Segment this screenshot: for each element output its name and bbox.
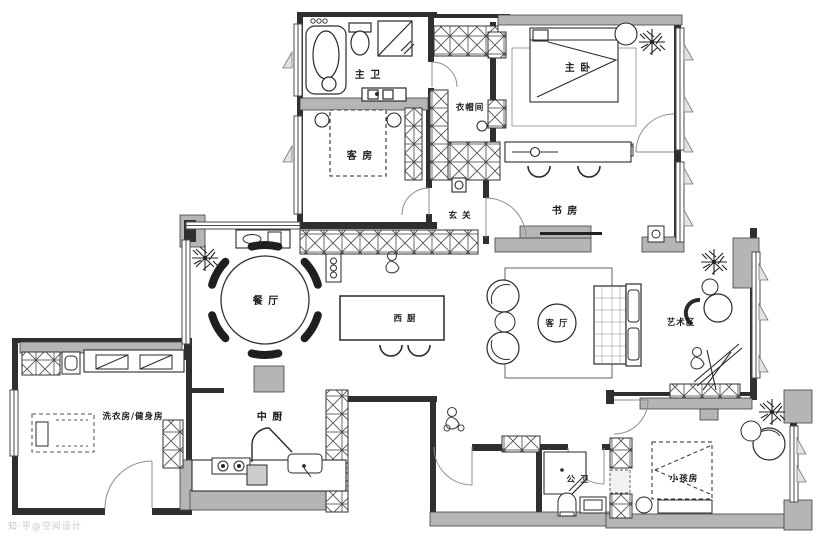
treadmill bbox=[32, 414, 94, 452]
door-master-bath bbox=[432, 62, 457, 87]
person-figure bbox=[691, 348, 704, 369]
room-kids bbox=[636, 421, 785, 513]
stool bbox=[636, 497, 652, 513]
window bbox=[676, 162, 684, 242]
cloakroom-left-cabinet bbox=[430, 90, 448, 180]
room-west-kitchen bbox=[340, 296, 444, 356]
bathtub-basin bbox=[313, 31, 339, 79]
label-study: 书 房 bbox=[552, 204, 578, 217]
room-master-bathroom bbox=[306, 19, 414, 101]
desk-chair bbox=[528, 166, 550, 177]
label-living: 客 厅 bbox=[545, 318, 569, 329]
dots bbox=[311, 19, 327, 23]
floor-plan-drawing: 主 卫 主 卧 衣帽间 客 房 玄 关 书 房 餐 厅 西 厨 客 厅 艺术区 … bbox=[0, 0, 821, 547]
side-table bbox=[495, 312, 515, 332]
bedside-table bbox=[387, 113, 401, 127]
window bbox=[186, 222, 300, 229]
room-chinese-kitchen bbox=[192, 428, 346, 491]
west-kitchen-cabinets bbox=[300, 230, 478, 254]
window bbox=[294, 24, 302, 96]
kitchen-tall-cabinet bbox=[326, 390, 348, 512]
tv bbox=[540, 232, 602, 235]
pantry-door bbox=[247, 465, 267, 485]
label-chinese-kitchen: 中 厨 bbox=[257, 410, 283, 423]
desk-chair bbox=[578, 166, 600, 177]
person-figure bbox=[386, 252, 399, 273]
label-guest-bathroom: 公 卫 bbox=[567, 475, 590, 485]
door-guest-room bbox=[402, 188, 429, 215]
laundry-cabinet bbox=[22, 352, 60, 375]
cloakroom-stool bbox=[477, 121, 487, 131]
bar-stool bbox=[408, 345, 430, 356]
guest-room-wardrobe bbox=[405, 108, 422, 180]
window bbox=[676, 28, 684, 150]
kitchen-island bbox=[340, 296, 444, 340]
label-laundry-gym: 洗衣房/健身房 bbox=[102, 411, 163, 422]
toilet-bowl bbox=[351, 31, 369, 55]
room-master-bedroom bbox=[505, 23, 637, 177]
bedside-table bbox=[315, 113, 329, 127]
label-master-bathroom: 主 卫 bbox=[355, 68, 381, 81]
plant-icon bbox=[759, 399, 785, 425]
bar-stool bbox=[380, 345, 402, 356]
door-hall bbox=[434, 447, 472, 485]
sink bbox=[288, 454, 322, 473]
window bbox=[10, 390, 18, 456]
plant-icon bbox=[701, 249, 727, 275]
fixture bbox=[648, 226, 664, 242]
door-master-bedroom bbox=[636, 114, 674, 152]
desk-knob bbox=[531, 148, 540, 157]
niche-dashed bbox=[610, 470, 630, 493]
watermark-text: 知·乎@空间设计 bbox=[8, 520, 82, 532]
scooter-wheel bbox=[458, 425, 464, 431]
label-dining: 餐 厅 bbox=[252, 294, 279, 307]
shower-enclosure bbox=[544, 452, 586, 494]
label-master-bedroom: 主 卧 bbox=[565, 61, 591, 74]
label-kids-room: 小孩房 bbox=[669, 473, 699, 484]
cloakroom-bottom-cabinet bbox=[448, 142, 500, 180]
wall-fills bbox=[20, 15, 812, 530]
bathtub-drain bbox=[322, 77, 336, 91]
sofa bbox=[594, 284, 641, 366]
window bbox=[294, 116, 302, 214]
floor-plan-canvas: 主 卫 主 卧 衣帽间 客 房 玄 关 书 房 餐 厅 西 厨 客 厅 艺术区 … bbox=[0, 0, 821, 547]
curved-partition bbox=[252, 428, 292, 462]
label-cloakroom: 衣帽间 bbox=[456, 102, 485, 113]
label-art-zone: 艺术区 bbox=[667, 317, 696, 328]
bench bbox=[658, 500, 712, 513]
art-stool bbox=[702, 279, 718, 295]
label-foyer: 玄 关 bbox=[449, 210, 472, 221]
plant-icon bbox=[639, 29, 665, 55]
label-guest-room: 客 房 bbox=[346, 149, 373, 162]
room-art-zone bbox=[686, 279, 742, 390]
door-laundry bbox=[105, 461, 152, 508]
window bbox=[182, 240, 190, 344]
side-table bbox=[741, 421, 761, 441]
round-table bbox=[615, 23, 637, 45]
person-figure bbox=[446, 408, 459, 429]
plant-icon bbox=[192, 245, 218, 271]
bed-dashed bbox=[330, 110, 386, 176]
room-guest-room bbox=[315, 110, 401, 176]
art-table bbox=[704, 294, 732, 322]
label-west-kitchen: 西 厨 bbox=[394, 313, 417, 324]
